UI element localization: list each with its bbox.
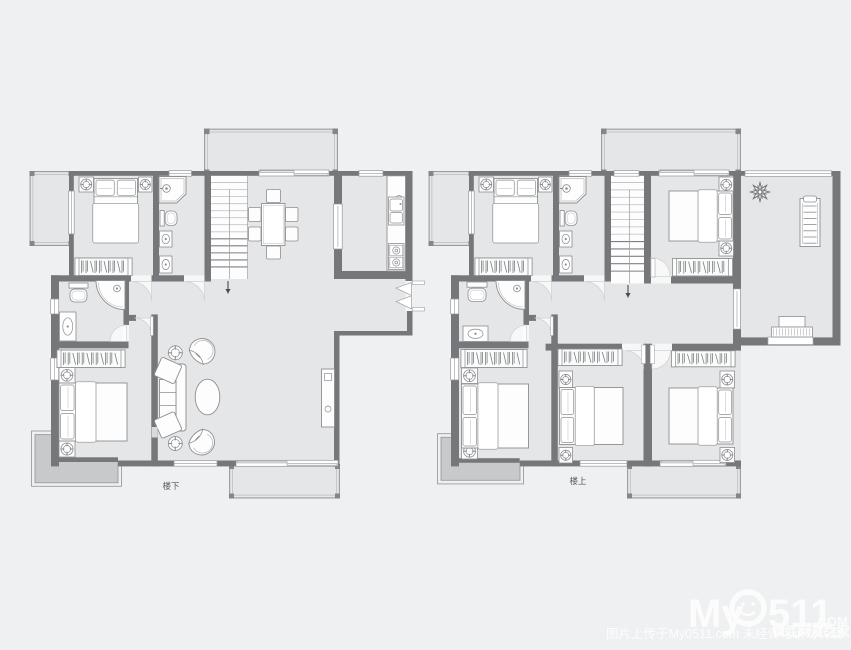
svg-text:图片上传于My0511.com 未经许可请勿转载: 图片上传于My0511.com 未经许可请勿转载 <box>606 626 843 641</box>
svg-text:楼上: 楼上 <box>569 476 587 486</box>
svg-text:楼下: 楼下 <box>162 481 180 491</box>
